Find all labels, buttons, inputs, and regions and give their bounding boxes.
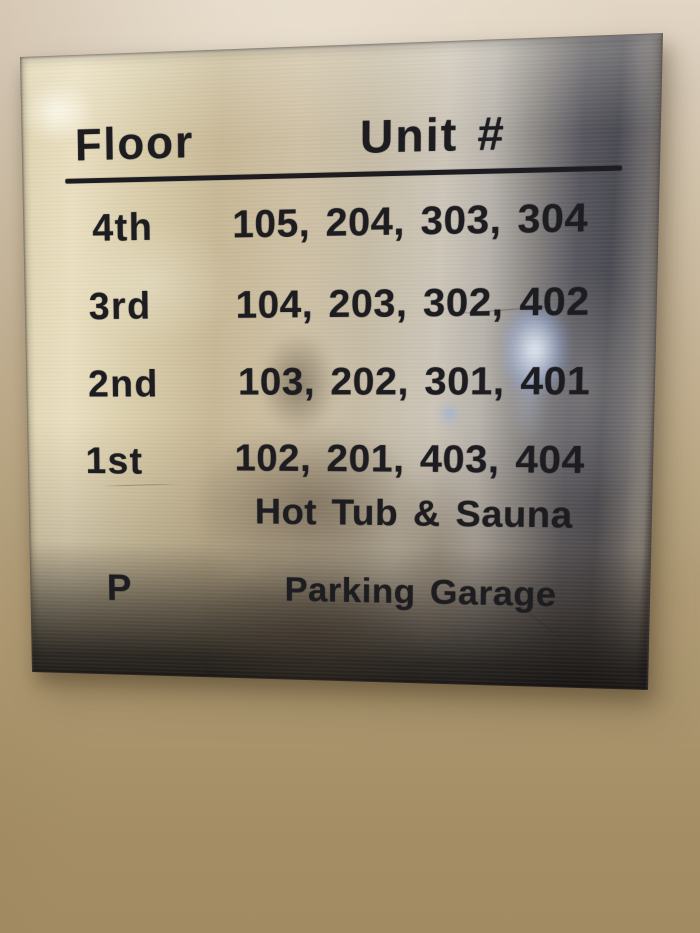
floor-label-parking: P <box>107 569 133 606</box>
parking-garage-label: Parking Garage <box>285 573 557 612</box>
units-2nd-floor: 103, 202, 301, 401 <box>238 362 591 402</box>
floor-label-4th: 4th <box>92 208 153 248</box>
header-divider-line <box>65 166 622 184</box>
unit-column-header: Unit # <box>360 109 506 159</box>
units-3rd-floor: 104, 203, 302, 402 <box>236 282 591 325</box>
floor-column-header: Floor <box>75 119 195 167</box>
sign-content: Floor Unit # 4th 105, 204, 303, 304 3rd … <box>20 33 663 690</box>
photo-scene: Floor Unit # 4th 105, 204, 303, 304 3rd … <box>0 0 700 933</box>
hot-tub-sauna-note: Hot Tub & Sauna <box>255 494 573 534</box>
floor-label-1st: 1st <box>85 442 143 480</box>
units-4th-floor: 105, 204, 303, 304 <box>232 198 588 244</box>
directory-sign-plate: Floor Unit # 4th 105, 204, 303, 304 3rd … <box>20 33 663 690</box>
units-1st-floor: 102, 201, 403, 404 <box>234 439 585 480</box>
floor-label-2nd: 2nd <box>88 365 159 403</box>
floor-label-3rd: 3rd <box>89 287 152 326</box>
